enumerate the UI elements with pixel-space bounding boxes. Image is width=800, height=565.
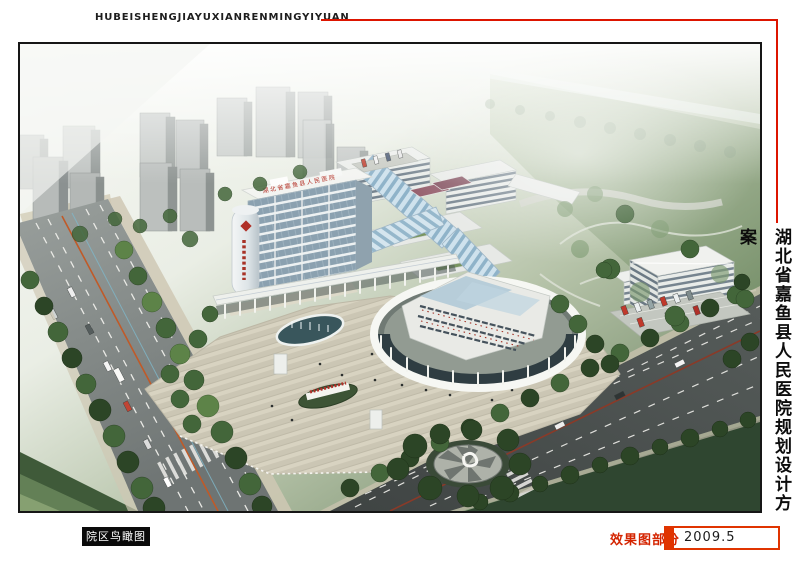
figure-caption-label: 院区鸟瞰图 [86, 530, 146, 543]
date-box: 2009.5 [664, 526, 780, 550]
gate-kiosk-west [274, 354, 287, 374]
gate-kiosk-south [370, 410, 382, 429]
date-red-bar [666, 528, 674, 548]
side-red-rule [776, 19, 778, 223]
date-text: 2009.5 [684, 528, 736, 548]
side-title-vertical: 湖北省嘉鱼县人民医院规划设计方案 [763, 228, 798, 514]
header-red-rule [321, 19, 778, 21]
campus-rendering: 湖北省嘉鱼县人民医院 [20, 44, 760, 511]
pinyin-title: HUBEISHENGJIAYUXIANRENMINGYIYUAN [95, 12, 350, 23]
figure-caption-box: 院区鸟瞰图 [82, 527, 150, 546]
presentation-board: HUBEISHENGJIAYUXIANRENMINGYIYUAN [0, 0, 800, 565]
rendering-frame: 湖北省嘉鱼县人民医院 [18, 42, 762, 513]
